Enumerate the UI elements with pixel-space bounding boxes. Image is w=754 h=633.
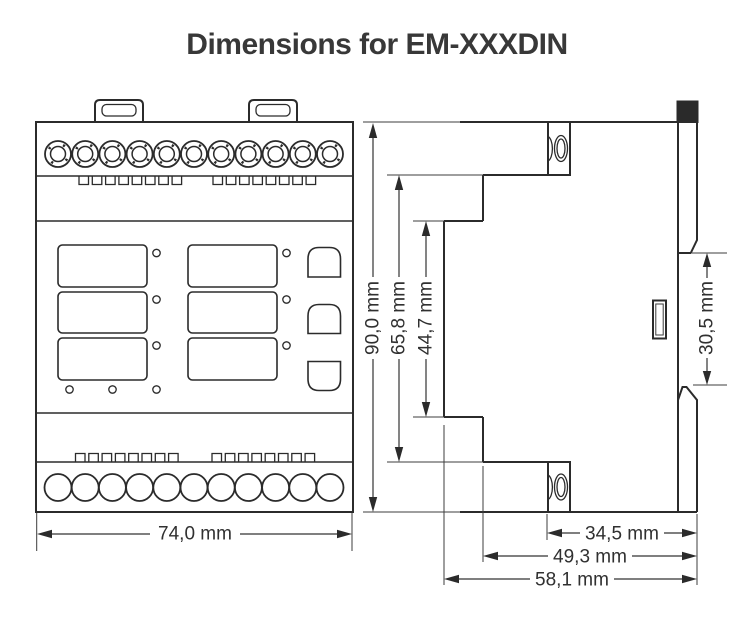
- arrowhead-left: [547, 529, 562, 537]
- arrowhead-up: [703, 253, 711, 267]
- dim-label-overall-height: 90,0 mm: [363, 281, 384, 355]
- dim-depth-terminal: 34,5 mm: [547, 524, 697, 545]
- terminal-screw: [290, 141, 316, 167]
- led-indicator: [153, 342, 160, 349]
- din-rail-upper-hook: [678, 122, 697, 253]
- terminal-screw: [263, 141, 289, 167]
- dim-label-overall-depth: 58,1 mm: [535, 570, 609, 591]
- terminal-screw: [99, 474, 126, 501]
- front-view: [36, 100, 353, 512]
- terminal-screw: [181, 474, 208, 501]
- pin-hole: [153, 386, 160, 393]
- terminal-screw: [235, 474, 262, 501]
- side-view: [444, 101, 698, 512]
- dim-label-front-width: 74,0 mm: [158, 524, 232, 545]
- pin-hole: [66, 386, 73, 393]
- dim-label-front-face-height: 44,7 mm: [416, 281, 437, 355]
- button-middle: [308, 305, 341, 334]
- terminal-screw: [45, 474, 72, 501]
- display-window: [58, 338, 147, 380]
- button-bottom: [308, 362, 341, 391]
- terminal-screw: [154, 141, 180, 167]
- led-indicator: [283, 296, 290, 303]
- dim-label-depth-step: 49,3 mm: [553, 547, 627, 568]
- pin-hole: [109, 386, 116, 393]
- terminal-screw: [72, 474, 99, 501]
- terminal-housing-top: [548, 122, 570, 175]
- terminal-screws-top: [45, 141, 343, 167]
- dim-depth-step: 49,3 mm: [483, 547, 697, 568]
- terminal-screws-bottom: [45, 474, 344, 501]
- terminal-screw: [181, 141, 207, 167]
- housing-outline: [548, 462, 570, 512]
- terminal-screw: [127, 141, 153, 167]
- arrowhead-right: [337, 530, 352, 538]
- led-indicators: [66, 249, 290, 393]
- arrowhead-right: [682, 552, 697, 560]
- display-window: [188, 245, 277, 287]
- dim-front-face-height: 44,7 mm: [416, 221, 437, 417]
- led-indicator: [283, 249, 290, 256]
- terminal-screw: [317, 474, 344, 501]
- screw-side-inner: [557, 139, 565, 158]
- terminal-screw: [208, 141, 234, 167]
- terminal-screw: [126, 474, 153, 501]
- front-profile-steps: [444, 175, 548, 462]
- terminal-screw: [262, 474, 289, 501]
- led-indicator: [153, 296, 160, 303]
- terminal-screw: [317, 141, 343, 167]
- dim-label-depth-terminal: 34,5 mm: [585, 524, 659, 545]
- mounting-tab: [249, 100, 297, 122]
- led-indicator: [283, 342, 290, 349]
- arrowhead-right: [682, 529, 697, 537]
- dim-label-terminal-span: 65,8 mm: [389, 281, 410, 355]
- arrowhead-down: [395, 447, 403, 462]
- terminal-screw: [208, 474, 235, 501]
- arrowhead-left: [37, 530, 52, 538]
- led-indicator: [153, 249, 160, 256]
- vent-comb-top: [79, 176, 316, 185]
- dim-label-din-clip-gap: 30,5 mm: [697, 281, 718, 355]
- terminal-screw: [45, 141, 71, 167]
- display-window: [58, 292, 147, 333]
- terminal-screw: [72, 141, 98, 167]
- mounting-tab: [95, 100, 143, 122]
- dim-din-clip-gap: 30,5 mm: [697, 253, 718, 385]
- dimension-diagram: Dimensions for EM-XXXDIN: [0, 0, 754, 633]
- display-window: [58, 245, 147, 287]
- arrowhead-left: [444, 575, 459, 583]
- arrowhead-up: [395, 175, 403, 190]
- arrowhead-down: [422, 402, 430, 417]
- din-latch: [653, 301, 666, 339]
- terminal-housing-bottom: [548, 462, 570, 512]
- display-window: [188, 338, 277, 380]
- terminal-screw: [99, 141, 125, 167]
- dim-overall-height: 90,0 mm: [363, 123, 384, 512]
- button-top: [308, 248, 341, 278]
- arrowhead-right: [682, 575, 697, 583]
- housing-outline: [548, 122, 570, 175]
- arrowhead-down: [369, 497, 377, 512]
- screw-side-inner: [557, 478, 565, 497]
- terminal-screw: [289, 474, 316, 501]
- technical-drawing: 74,0 mm: [0, 0, 754, 633]
- arrowhead-left: [483, 552, 498, 560]
- vent-comb-bottom: [76, 454, 315, 463]
- din-rail-lower-hook: [678, 387, 697, 512]
- display-windows: [58, 245, 277, 380]
- front-buttons: [308, 248, 341, 391]
- din-latch-inner: [656, 304, 663, 335]
- arrowhead-up: [369, 123, 377, 138]
- display-window: [188, 292, 277, 333]
- dim-overall-depth: 58,1 mm: [444, 570, 697, 591]
- terminal-screw: [153, 474, 180, 501]
- terminal-screw: [235, 141, 261, 167]
- dim-front-width: 74,0 mm: [37, 513, 352, 551]
- arrowhead-down: [703, 371, 711, 385]
- din-clip-black: [677, 101, 698, 123]
- dim-terminal-span: 65,8 mm: [389, 175, 410, 462]
- arrowhead-up: [422, 221, 430, 236]
